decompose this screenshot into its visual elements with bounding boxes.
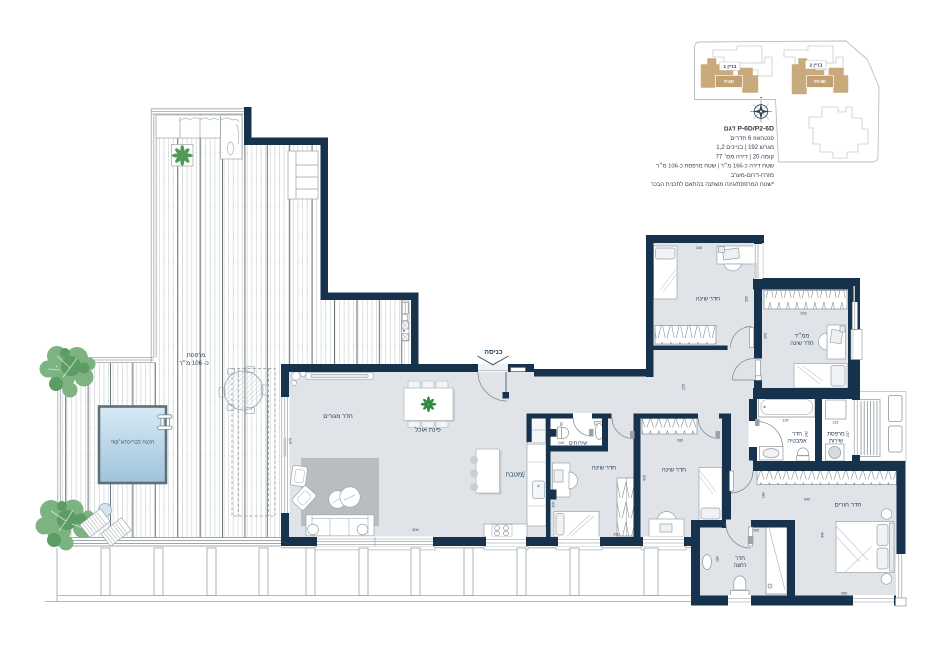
svg-text:מרפסת: מרפסת [187, 353, 206, 359]
svg-text:חדר מגורים: חדר מגורים [323, 413, 353, 420]
svg-text:293: 293 [800, 312, 806, 316]
svg-text:P-6D: P-6D [724, 79, 734, 84]
svg-text:הכנה לבריכה/ג׳קוזי: הכנה לבריכה/ג׳קוזי [111, 439, 154, 446]
svg-text:415: 415 [643, 475, 647, 481]
svg-text:חדר: חדר [792, 432, 802, 438]
svg-text:מרפסת: מרפסת [827, 432, 845, 438]
svg-text:195: 195 [782, 419, 788, 423]
svg-text:806: 806 [412, 528, 418, 532]
svg-text:350: 350 [745, 296, 749, 302]
svg-text:חדר שינה: חדר שינה [592, 466, 616, 472]
svg-text:חדר שינה: חדר שינה [696, 297, 720, 303]
svg-text:242: 242 [805, 431, 809, 437]
svg-text:חדר שינה: חדר שינה [662, 468, 686, 474]
svg-text:בניין 1: בניין 1 [724, 64, 737, 69]
svg-text:קומה 20 | דירה מס׳ 77: קומה 20 | דירה מס׳ 77 [716, 153, 775, 160]
svg-text:חדר שינה: חדר שינה [790, 341, 814, 347]
svg-text:365: 365 [841, 592, 847, 596]
svg-text:415: 415 [522, 471, 526, 477]
svg-text:אמבטיה: אמבטיה [787, 439, 807, 445]
svg-text:פנטהאוז 6 חדרים: פנטהאוז 6 חדרים [730, 136, 774, 142]
svg-text:280: 280 [677, 439, 683, 443]
svg-text:מזרח-דרום-מערב: מזרח-דרום-מערב [731, 173, 774, 179]
svg-text:590: 590 [804, 498, 810, 502]
svg-text:חדר הורים: חדר הורים [834, 502, 861, 509]
svg-text:180: 180 [762, 492, 766, 498]
svg-text:305: 305 [753, 529, 759, 533]
svg-text:פינת אוכל: פינת אוכל [415, 426, 441, 434]
svg-text:440: 440 [821, 532, 825, 538]
svg-text:דגם P-6D/P2-6D: דגם P-6D/P2-6D [724, 126, 774, 133]
svg-text:115: 115 [833, 421, 839, 425]
svg-text:875: 875 [289, 438, 293, 444]
svg-text:260: 260 [613, 533, 619, 537]
svg-text:‏*שטח המרפסת/גינה משתנה בהתאם: ‏*שטח המרפסת/גינה משתנה בהתאם לתכנית הבכ… [651, 181, 775, 188]
svg-text:225: 225 [682, 384, 686, 390]
svg-text:בניין 2: בניין 2 [810, 63, 823, 68]
svg-text:מטבח: מטבח [506, 472, 523, 479]
svg-text:ממ״ד: ממ״ד [795, 333, 810, 340]
svg-text:מגרש 192 | בניינים 1,2: מגרש 192 | בניינים 1,2 [716, 145, 774, 151]
svg-text:חדר: חדר [735, 556, 745, 562]
svg-text:רחצה: רחצה [733, 563, 746, 569]
svg-text:140: 140 [558, 441, 564, 445]
svg-text:שירותים: שירותים [569, 440, 587, 446]
svg-text:300: 300 [552, 501, 556, 507]
svg-text:345: 345 [696, 246, 702, 250]
svg-text:שטח דירה כ-166 מ״ר | שטח מרפסת: שטח דירה כ-166 מ״ר | שטח מרפסת כ-106 מ״ר [656, 163, 774, 170]
svg-text:שירות: שירות [829, 439, 843, 445]
svg-text:כ- 106 מ״ר: כ- 106 מ״ר [179, 360, 208, 367]
svg-text:306: 306 [764, 333, 768, 339]
svg-text:P2-6D: P2-6D [814, 79, 826, 84]
svg-text:כניסה: כניסה [484, 349, 503, 356]
svg-text:237: 237 [846, 431, 850, 437]
svg-text:90: 90 [560, 422, 564, 426]
svg-text:280: 280 [716, 556, 720, 562]
